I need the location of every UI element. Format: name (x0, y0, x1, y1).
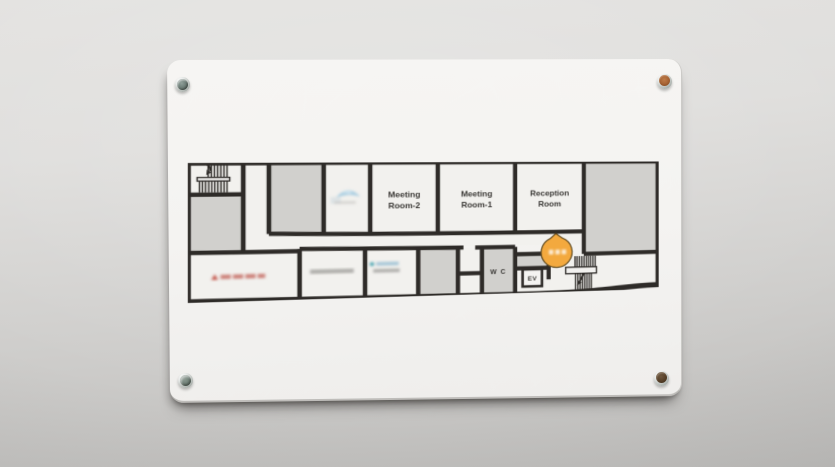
svg-text:EV: EV (528, 274, 537, 282)
svg-text:Reception: Reception (530, 189, 569, 198)
svg-text:Meeting: Meeting (388, 190, 420, 199)
svg-text:Meeting: Meeting (461, 189, 492, 198)
svg-text:Room-1: Room-1 (461, 200, 492, 209)
svg-text:W C: W C (490, 268, 506, 276)
svg-text:Room: Room (538, 199, 561, 208)
svg-text:Room-2: Room-2 (388, 201, 420, 210)
